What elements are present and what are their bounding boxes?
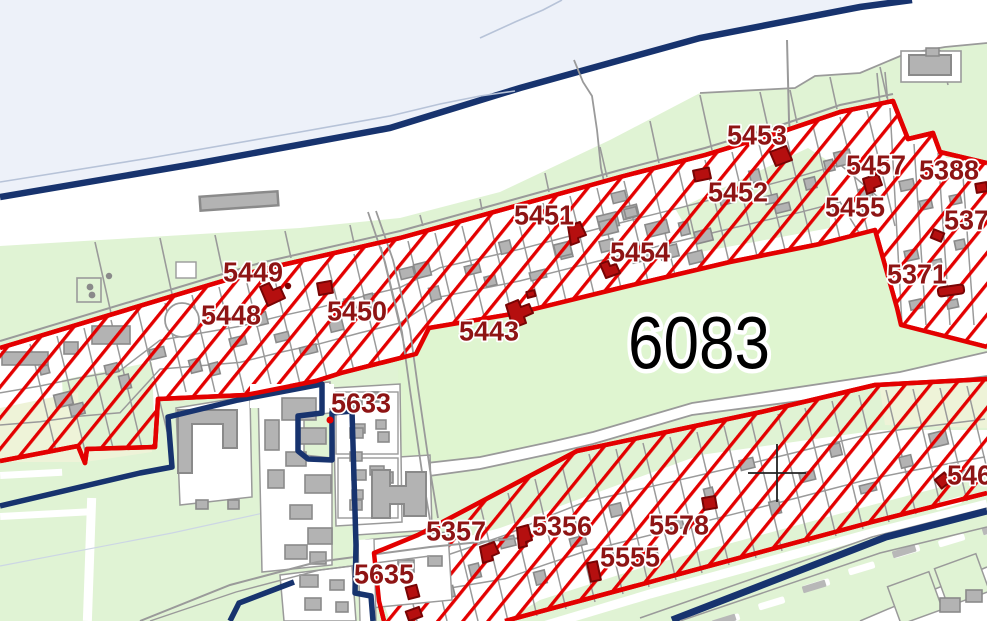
- svg-text:6083: 6083: [628, 302, 770, 385]
- svg-text:5450: 5450: [327, 295, 387, 326]
- svg-text:5578: 5578: [649, 509, 709, 540]
- svg-text:5453: 5453: [727, 119, 787, 150]
- svg-text:5451: 5451: [514, 199, 574, 230]
- svg-text:5635: 5635: [354, 558, 414, 589]
- svg-text:5448: 5448: [201, 299, 261, 330]
- svg-text:5449: 5449: [223, 256, 283, 287]
- svg-text:5357: 5357: [426, 515, 486, 546]
- svg-text:5468: 5468: [947, 459, 987, 490]
- svg-text:5443: 5443: [459, 315, 519, 346]
- svg-text:5452: 5452: [708, 176, 768, 207]
- svg-text:5454: 5454: [610, 236, 671, 267]
- svg-text:5370: 5370: [944, 204, 987, 235]
- svg-text:5457: 5457: [846, 149, 906, 180]
- svg-text:5388: 5388: [919, 154, 979, 185]
- svg-text:5356: 5356: [532, 510, 592, 541]
- svg-text:5633: 5633: [331, 387, 391, 418]
- svg-text:5371: 5371: [887, 258, 947, 289]
- svg-text:5455: 5455: [825, 191, 885, 222]
- svg-text:5555: 5555: [600, 541, 660, 572]
